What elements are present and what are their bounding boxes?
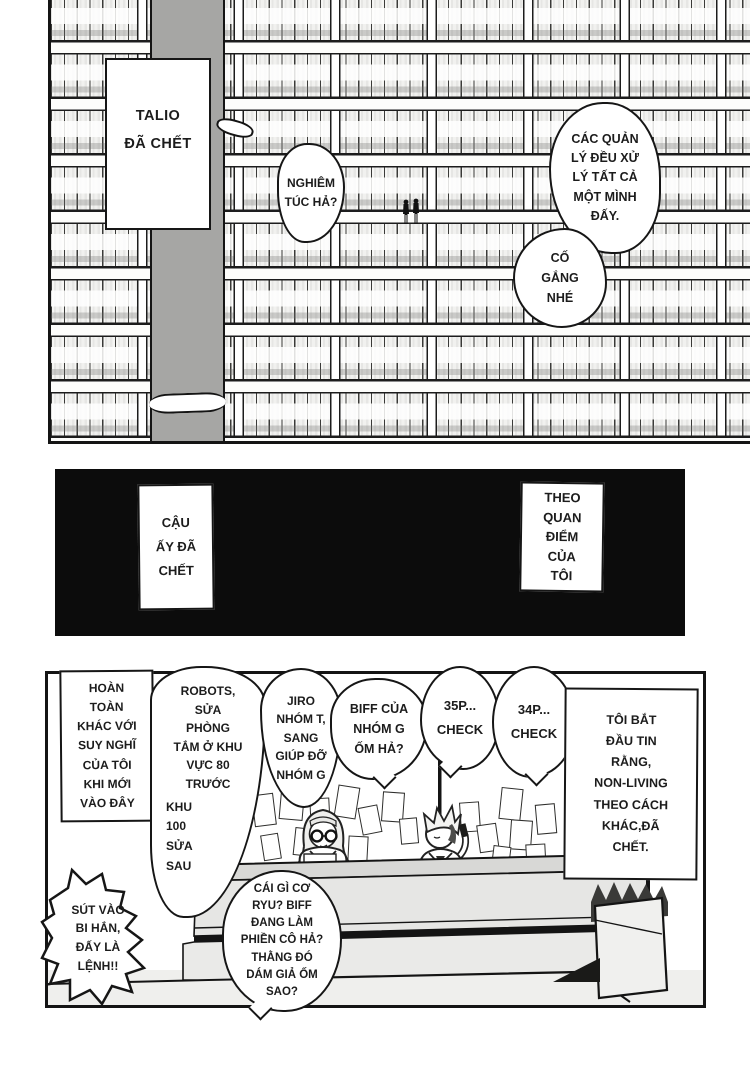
bubble-robots-bottom-text: KHU 100 SỬA SAU <box>166 798 193 877</box>
panel-office: HOÀN TOÀN KHÁC VỚI SUY NGHĨ CỦA TÔI KHI … <box>45 671 706 1008</box>
bubble-cai-gi: CÁI GÌ CƠ RYU? BIFF ĐANG LÀM PHIỀN CÔ HẢ… <box>222 870 342 1012</box>
caption-talio: TALIO ĐÃ CHẾT <box>105 58 211 230</box>
caption-hoan-toan-text: HOÀN TOÀN KHÁC VỚI SUY NGHĨ CỦA TÔI KHI … <box>77 679 138 814</box>
bubble-cai-gi-text: CÁI GÌ CƠ RYU? BIFF ĐANG LÀM PHIỀN CÔ HẢ… <box>241 881 323 1002</box>
bubble-biff-text: BIFF CỦA NHÓM G ỐM HẢ? <box>350 699 408 759</box>
tiny-figures <box>401 198 423 231</box>
panel-library: TALIO ĐÃ CHẾT NGHIÊM TÚC HẢ? CÁC QUẢN LÝ… <box>48 0 750 444</box>
bubble-sut-vao-text: SÚT VÀO BI HẮN, ĐẤY LÀ LỆNH!! <box>40 866 156 1010</box>
bubble-35p-check: 35P... CHECK <box>420 666 500 770</box>
bubble-sut-vao: SÚT VÀO BI HẮN, ĐẤY LÀ LỆNH!! <box>40 866 156 1010</box>
caption-theo-quan-diem: THEO QUAN ĐIỂM CỦA TÔI <box>519 481 605 592</box>
bubble-35p-text: 35P... CHECK <box>437 694 483 742</box>
caption-hoan-toan: HOÀN TOÀN KHÁC VỚI SUY NGHĨ CỦA TÔI KHI … <box>59 670 154 823</box>
caption-cau-ay: CẬU ẤY ĐÃ CHẾT <box>137 484 214 611</box>
bubble-jiro-text: JIRO NHÓM T, SANG GIÚP ĐỠ NHÓM G <box>275 692 326 785</box>
caption-toi-bat-dau: TÔI BẮT ĐẦU TIN RẰNG, NON-LIVING THEO CÁ… <box>563 688 698 881</box>
bubble-co-gang: CỐ GẮNG NHÉ <box>513 228 607 328</box>
bubble-34p-text: 34P... CHECK <box>511 698 557 746</box>
bubble-co-gang-text: CỐ GẮNG NHÉ <box>541 248 579 308</box>
bubble-nghiem-tuc-text: NGHIÊM TÚC HẢ? <box>285 174 338 212</box>
person-silhouette <box>403 199 419 224</box>
bubble-cac-quan-ly-text: CÁC QUẢN LÝ ĐỀU XỬ LÝ TẤT CẢ MỘT MÌNH ĐẤ… <box>571 130 639 227</box>
caption-cau-ay-text: CẬU ẤY ĐÃ CHẾT <box>156 511 197 584</box>
caption-theo-quan-diem-text: THEO QUAN ĐIỂM CỦA TÔI <box>542 488 582 586</box>
caption-talio-text: TALIO ĐÃ CHẾT <box>124 103 191 158</box>
panel-black: CẬU ẤY ĐÃ CHẾT THEO QUAN ĐIỂM CỦA TÔI <box>55 469 685 636</box>
caption-toi-bat-dau-text: TÔI BẮT ĐẦU TIN RẰNG, NON-LIVING THEO CÁ… <box>593 709 668 858</box>
pillar-ring <box>149 392 227 415</box>
bubble-robots-top-text: ROBOTS, SỬA PHÒNG TẮM Ở KHU VỰC 80 TRƯỚC <box>174 682 243 794</box>
